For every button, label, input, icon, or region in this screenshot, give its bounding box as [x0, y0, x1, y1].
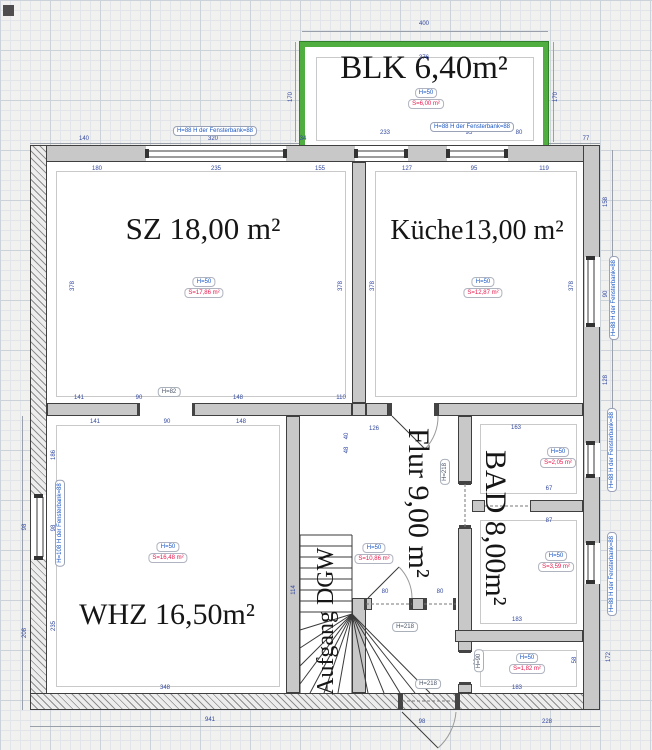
window-label-right-bad-upper: H=88 H der Fensterbank=88	[607, 408, 617, 492]
dim-label: 128	[603, 375, 609, 385]
dim-label: 98	[419, 719, 426, 725]
window-label-top-sz: H=88 H der Fensterbank=88	[173, 126, 257, 136]
dim-label: 87	[546, 518, 553, 524]
dim-label: 90	[164, 419, 171, 425]
room-stamp-flur: H=50 S=10,86 m²	[354, 543, 393, 564]
dim-label: 172	[606, 652, 612, 662]
door-label-sz-opening: H=82	[158, 387, 181, 397]
dim-label: 140	[79, 136, 89, 142]
dim-label: 148	[236, 419, 246, 425]
area-stamp: S=10,86 m²	[354, 554, 393, 564]
height-stamp: H=50	[193, 277, 216, 287]
dim-label: 110	[336, 395, 346, 401]
dim-label: 228	[542, 719, 552, 725]
dim-label: 208	[22, 628, 28, 638]
windows	[31, 146, 600, 584]
area-stamp: S=12,87 m²	[463, 288, 502, 298]
window-label-right-kueche: H=88 H der Fensterbank=88	[609, 256, 619, 340]
dim-label: 378	[569, 281, 575, 291]
dim-label: 80	[382, 589, 389, 595]
window-label-top-kueche: H=88 H der Fensterbank=88	[430, 122, 514, 132]
dim-label: 77	[583, 136, 590, 142]
dim-label: 34	[300, 136, 307, 142]
dim-label: 98	[22, 524, 28, 531]
dim-label: 170	[553, 92, 559, 102]
dim-label: 378	[338, 281, 344, 291]
room-label-sz: SZ 18,00 m²	[126, 211, 281, 247]
dim-label: 183	[512, 685, 522, 691]
room-stamp-sz: H=50 S=17,86 m²	[184, 277, 223, 298]
dim-label: 376	[419, 55, 429, 61]
room-stamp-kueche: H=50 S=12,87 m²	[463, 277, 502, 298]
dim-label: 186	[51, 450, 57, 460]
dim-label: 233	[380, 130, 390, 136]
dim-label: 348	[160, 685, 170, 691]
area-stamp: S=1,82 m²	[509, 664, 545, 674]
height-stamp: H=50	[547, 447, 570, 457]
room-label-whz: WHZ 16,50m²	[79, 598, 255, 632]
dim-label: 155	[315, 166, 325, 172]
dim-label: 141	[74, 395, 84, 401]
room-label-flur: Flur 9,00 m²	[401, 428, 435, 623]
dim-label: 378	[370, 281, 376, 291]
dim-label: 183	[512, 617, 522, 623]
door-label-flur: H=218	[392, 622, 418, 632]
dim-label: 148	[233, 395, 243, 401]
height-stamp: H=50	[415, 88, 438, 98]
room-stamp-bad-upper: H=50 S=2,05 m²	[540, 447, 576, 468]
area-stamp: S=16,48 m²	[148, 553, 187, 563]
dim-label: 235	[211, 166, 221, 172]
area-stamp: S=3,59 m²	[538, 562, 574, 572]
room-stamp-whz: H=50 S=16,48 m²	[148, 542, 187, 563]
dim-label: 320	[208, 136, 218, 142]
room-stamp-store: H=50 S=1,82 m²	[509, 653, 545, 674]
dim-label: 127	[402, 166, 412, 172]
dim-label: 235	[51, 621, 57, 631]
room-label-kueche: Küche13,00 m²	[390, 215, 563, 247]
dim-label: 141	[90, 419, 100, 425]
room-label-bad: BAD 8,00m²	[478, 450, 512, 630]
dim-label: 90	[136, 395, 143, 401]
dim-label: 58	[572, 657, 578, 664]
door-label-bad: H=218	[440, 459, 450, 485]
dim-label: 180	[92, 166, 102, 172]
dim-label: 378	[70, 281, 76, 291]
window-label-right-bad-lower: H=88 H der Fensterbank=88	[607, 532, 617, 616]
height-stamp: H=50	[516, 653, 539, 663]
dim-label: 126	[369, 426, 379, 432]
height-stamp: H=50	[545, 551, 568, 561]
window-label-left-whz: H=108 H der Fensterbank=88	[55, 479, 65, 566]
door-label-store: H=90	[474, 650, 484, 673]
height-stamp: H=50	[363, 543, 386, 553]
dim-label: 80	[437, 589, 444, 595]
area-stamp: S=17,86 m²	[184, 288, 223, 298]
dim-label: 40	[344, 433, 350, 440]
area-stamp: S=2,05 m²	[540, 458, 576, 468]
area-stamp: S=6,00 m²	[408, 99, 444, 109]
dim-label: 170	[288, 92, 294, 102]
floor-plan-canvas: BLK 6,40m² SZ 18,00 m² Küche13,00 m² WHZ…	[0, 0, 652, 750]
dim-label: 941	[205, 717, 215, 723]
height-stamp: H=50	[157, 542, 180, 552]
door-label-entrance: H=218	[415, 679, 441, 689]
dim-label: 114	[291, 585, 297, 595]
dim-label: 119	[539, 166, 549, 172]
dim-label: 95	[471, 166, 478, 172]
dim-label: 80	[516, 130, 523, 136]
room-stamp-blk: H=50 S=6,00 m²	[408, 88, 444, 109]
dim-label: 158	[603, 197, 609, 207]
dim-label: 67	[546, 486, 553, 492]
dim-label: 400	[419, 21, 429, 27]
dim-label: 163	[511, 425, 521, 431]
room-stamp-bad-lower: H=50 S=3,59 m²	[538, 551, 574, 572]
selection-handle	[3, 5, 14, 16]
room-label-stairs: Aufgang DGW	[313, 525, 340, 695]
height-stamp: H=50	[472, 277, 495, 287]
dim-label: 48	[344, 447, 350, 454]
